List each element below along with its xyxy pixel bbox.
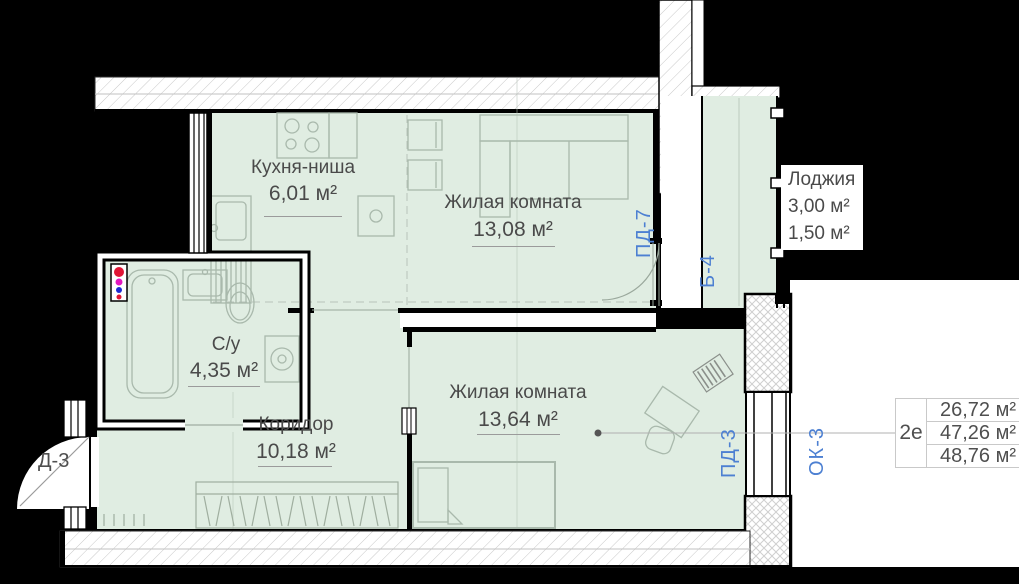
top-wall-hatched	[95, 77, 692, 114]
bathroom-name: С/у	[186, 334, 266, 356]
loggia-name: Лоджия	[788, 166, 855, 193]
loggia-glazing-mark: Б-4	[697, 228, 720, 288]
plumbing-risers	[111, 264, 127, 301]
loggia-area-total: 3,00 м²	[788, 193, 855, 220]
living1-name: Жилая комната	[423, 192, 603, 214]
living-divider-wall	[398, 308, 656, 313]
living1-area: 13,08 м²	[423, 218, 603, 242]
living2-door-jamb	[402, 408, 416, 434]
wall-cavity-top	[692, 0, 704, 96]
kitchen-area: 6,01 м²	[233, 182, 373, 206]
living2-area-underline	[477, 434, 560, 435]
living2-left-wall	[407, 420, 412, 531]
apartment-type: 2е	[896, 399, 927, 467]
riser-recirc-icon	[116, 279, 123, 286]
floor-plan-drawing	[0, 0, 1019, 584]
riser-hot-icon	[114, 267, 124, 277]
pier-right-lower	[745, 496, 791, 568]
living2-name: Жилая комната	[428, 382, 608, 404]
living2-area: 13,64 м²	[428, 408, 608, 432]
corridor-area: 10,18 м²	[226, 440, 366, 464]
apartment-summary-table: 2е 26,72 м² 47,26 м² 48,76 м²	[895, 398, 1019, 468]
entrance-door-mark: Д-3	[38, 450, 69, 473]
riser-cold-icon	[116, 287, 122, 293]
bathroom-area: 4,35 м²	[184, 359, 264, 383]
kitchen-area-underline	[264, 216, 342, 217]
loggia-label-block: Лоджия 3,00 м² 1,50 м²	[781, 165, 863, 250]
floor-plan-canvas: Кухня-ниша 6,01 м² Жилая комната 13,08 м…	[0, 0, 1019, 584]
corridor-name: Коридор	[226, 414, 366, 436]
riser-heating-icon	[117, 295, 122, 300]
summary-total-area: 48,76 м²	[927, 445, 1019, 467]
wall-cavity-loggia	[661, 96, 702, 308]
vent-shaft	[189, 113, 207, 253]
summary-area-without-loggia: 47,26 м²	[927, 422, 1019, 445]
kitchen-name: Кухня-ниша	[233, 157, 373, 179]
living1-area-underline	[472, 246, 555, 247]
balcony-door-mark: ПД-3	[718, 398, 741, 478]
wall-cavity-mid	[400, 312, 656, 328]
loggia-area-reduced: 1,50 м²	[788, 220, 855, 247]
pier-right-upper	[745, 294, 791, 392]
bathroom-area-underline	[188, 386, 260, 387]
window-mark: ОК-3	[806, 396, 829, 476]
bottom-wall-hatched	[60, 531, 790, 567]
corridor-area-underline	[258, 466, 332, 467]
loggia-door-mark: ПД-7	[633, 182, 656, 258]
summary-living-area: 26,72 м²	[927, 399, 1019, 422]
